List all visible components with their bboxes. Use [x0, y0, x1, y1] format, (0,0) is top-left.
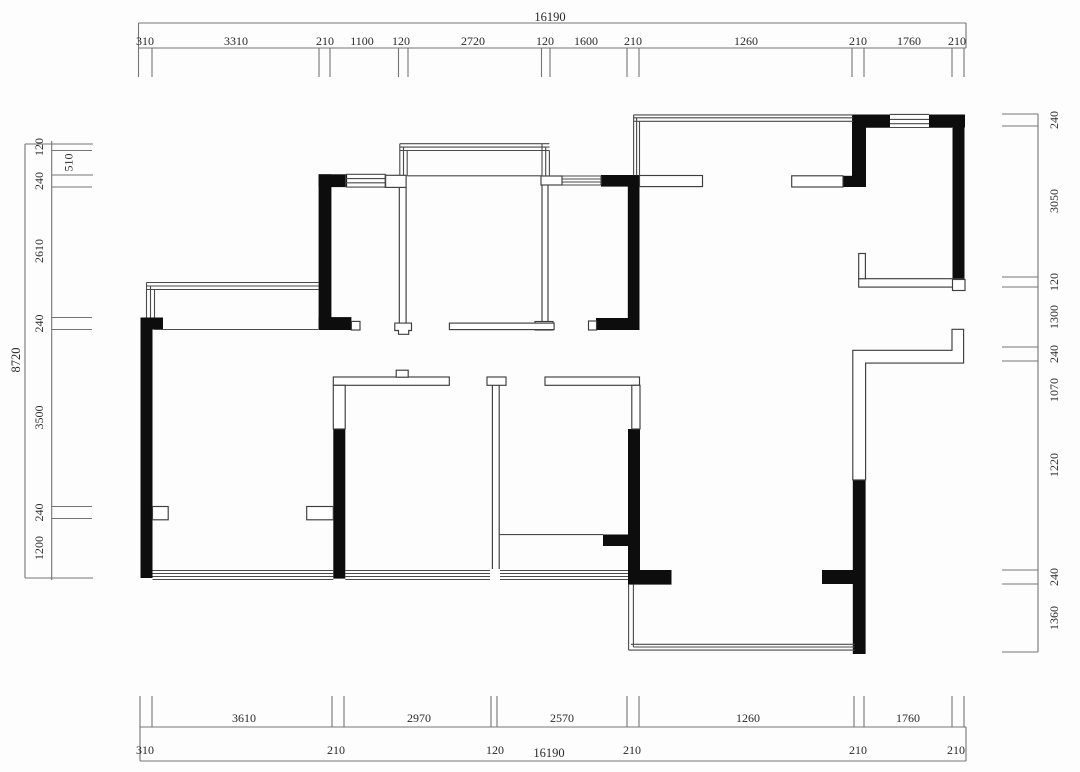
svg-text:210: 210 [849, 34, 867, 48]
svg-text:210: 210 [623, 743, 641, 757]
svg-text:1220: 1220 [1047, 453, 1061, 477]
svg-text:210: 210 [316, 34, 334, 48]
svg-text:210: 210 [948, 34, 966, 48]
svg-text:310: 310 [136, 34, 154, 48]
svg-text:3310: 3310 [224, 34, 248, 48]
svg-text:1260: 1260 [736, 711, 760, 725]
svg-text:240: 240 [1047, 111, 1061, 129]
svg-text:210: 210 [849, 743, 867, 757]
svg-text:1070: 1070 [1047, 378, 1061, 402]
svg-text:2610: 2610 [32, 239, 46, 263]
svg-text:240: 240 [1047, 345, 1061, 363]
svg-text:2970: 2970 [407, 711, 431, 725]
svg-text:1760: 1760 [896, 711, 920, 725]
svg-text:210: 210 [624, 34, 642, 48]
svg-text:1260: 1260 [734, 34, 758, 48]
svg-text:1100: 1100 [350, 34, 374, 48]
svg-text:3050: 3050 [1047, 189, 1061, 213]
svg-text:120: 120 [486, 743, 504, 757]
svg-text:16190: 16190 [534, 10, 565, 24]
svg-text:510: 510 [62, 154, 76, 172]
svg-text:1760: 1760 [897, 34, 921, 48]
svg-text:2720: 2720 [461, 34, 485, 48]
svg-text:240: 240 [1047, 568, 1061, 586]
svg-text:240: 240 [32, 172, 46, 190]
svg-text:1600: 1600 [574, 34, 598, 48]
svg-text:8720: 8720 [9, 348, 23, 373]
svg-text:16190: 16190 [533, 746, 564, 760]
svg-text:310: 310 [136, 743, 154, 757]
svg-text:3500: 3500 [32, 406, 46, 430]
svg-text:120: 120 [1047, 273, 1061, 291]
svg-text:210: 210 [327, 743, 345, 757]
svg-text:120: 120 [392, 34, 410, 48]
svg-text:120: 120 [536, 34, 554, 48]
svg-text:120: 120 [32, 138, 46, 156]
svg-text:2570: 2570 [550, 711, 574, 725]
svg-text:210: 210 [947, 743, 965, 757]
svg-text:240: 240 [32, 504, 46, 522]
svg-text:1200: 1200 [32, 536, 46, 560]
svg-text:1360: 1360 [1047, 606, 1061, 630]
svg-text:3610: 3610 [232, 711, 256, 725]
svg-text:1300: 1300 [1047, 305, 1061, 329]
svg-text:240: 240 [32, 315, 46, 333]
